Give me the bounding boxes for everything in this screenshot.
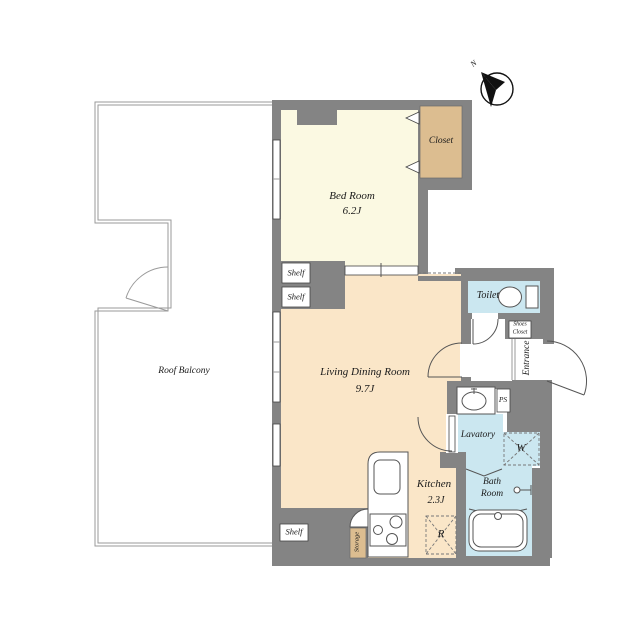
pillar	[297, 110, 337, 125]
bedroom-size: 6.2J	[343, 206, 362, 218]
storage-label: Storage	[355, 532, 362, 552]
north-compass	[481, 72, 513, 107]
closet-label: Closet	[429, 137, 453, 147]
refrigerator-label: R	[438, 529, 445, 541]
entrance-label: Entrance	[523, 341, 533, 376]
living-size: 9.7J	[356, 384, 375, 396]
living-window-lower	[273, 424, 280, 466]
floor-plan-drawing	[0, 0, 640, 640]
balcony-partition-door	[126, 267, 168, 311]
lavatory-sink	[457, 387, 495, 414]
kitchen-label: Kitchen	[417, 479, 451, 491]
lavatory-label: Lavatory	[461, 431, 495, 441]
living-shelf-label: Shelf	[288, 293, 305, 302]
kitchen-sink	[374, 460, 400, 494]
bedroom-shelf-label: Shelf	[288, 269, 305, 278]
bottom-shelf-label: Shelf	[286, 528, 303, 537]
washer-label: W	[516, 443, 525, 455]
living-window-upper	[273, 312, 280, 402]
floors	[281, 106, 543, 558]
floor-plan: Bed Room 6.2J Closet Living Dining Room …	[0, 0, 640, 640]
bathroom-label-line1: Bath	[483, 478, 501, 488]
roof-balcony-outline	[95, 102, 272, 546]
shoes-closet-label-line2: Closet	[513, 330, 528, 337]
bedroom-label: Bed Room	[329, 191, 375, 203]
kitchen-size: 2.3J	[428, 496, 445, 507]
bathtub	[469, 509, 527, 551]
entrance-front-door	[547, 341, 587, 395]
ps-label: PS	[499, 396, 507, 404]
shoes-closet-label-line1: Shoes	[513, 322, 527, 329]
toilet-label: Toilet	[477, 291, 499, 302]
bedroom-floor	[281, 110, 418, 267]
thin-north-wall	[418, 276, 465, 281]
living-label: Living Dining Room	[320, 367, 410, 379]
bathroom-label-line2: Room	[481, 490, 503, 500]
roof-balcony-label: Roof Balcony	[158, 367, 209, 377]
